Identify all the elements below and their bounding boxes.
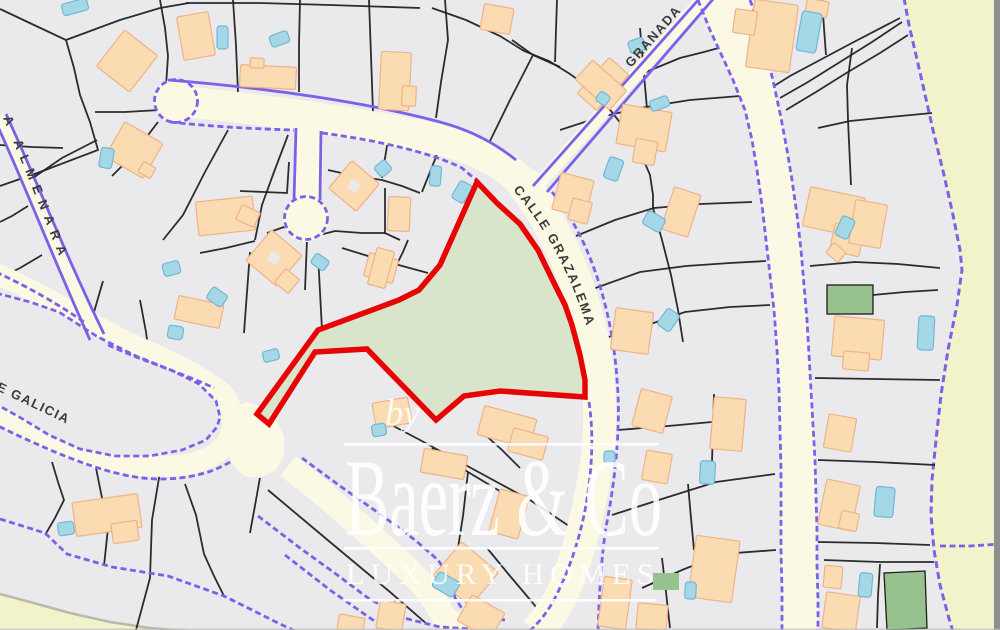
svg-text:Baerz & Co: Baerz & Co [345,437,662,559]
svg-text:LUXURY HOMES: LUXURY HOMES [346,558,660,591]
svg-text:by: by [385,393,421,434]
